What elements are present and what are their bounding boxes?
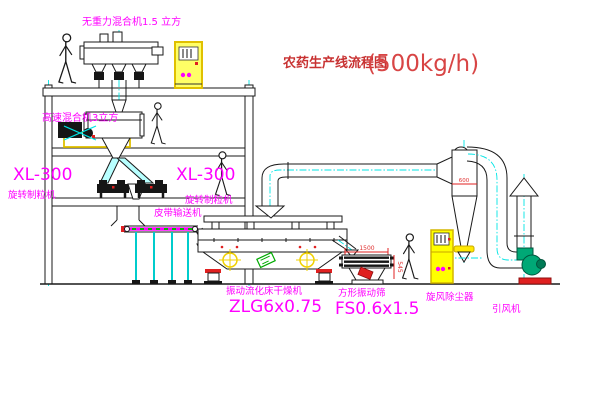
control-cabinet-top xyxy=(175,42,202,88)
rotary-granulator-left xyxy=(97,180,129,198)
indicator-lamp-icon xyxy=(448,238,451,241)
collector-bin-icon xyxy=(454,246,474,252)
label-gravity-mixer: 无重力混合机1.5 立方 xyxy=(82,15,181,28)
control-cabinet-right xyxy=(431,230,453,283)
indicator-lamp-icon xyxy=(195,62,198,65)
fan-motor-icon xyxy=(537,260,546,269)
worker-figure xyxy=(403,234,418,279)
button-icon xyxy=(441,267,445,271)
fan-base xyxy=(519,278,551,284)
motor-icon xyxy=(58,122,82,138)
label-granulator-mid: 旋转制粒机 xyxy=(185,194,233,206)
mid-floor-slab xyxy=(52,148,245,156)
induced-draft-fan xyxy=(517,248,551,284)
title-capacity: (500kg/h) xyxy=(367,51,479,77)
label-cyclone: 旋风除尘器 xyxy=(426,291,474,303)
top-floor-slab xyxy=(43,88,255,96)
square-vibrating-sieve: 1500 545 xyxy=(332,236,403,284)
cyclone-dimension: 600 xyxy=(459,178,470,184)
worker-figure xyxy=(59,34,76,83)
drawing-title: 农药生产线流程图 (500kg/h) xyxy=(282,51,479,77)
pesticide-line-drawing: 600 xyxy=(0,0,600,403)
y-split-chute xyxy=(100,158,153,183)
sieve-height-dimension: 545 xyxy=(396,261,403,273)
button-icon xyxy=(181,73,185,77)
label-sieve-model: FS0.6x1.5 xyxy=(335,299,419,319)
worker-figure xyxy=(151,103,165,144)
label-fan: 引风机 xyxy=(492,303,521,315)
label-high-speed-mixer: 高速混合机3立方 xyxy=(42,111,118,124)
sieve-width-dimension: 1500 xyxy=(359,245,374,252)
label-granulator-left: 旋转制粒机 xyxy=(8,189,56,201)
spring-mounts xyxy=(212,222,334,229)
conveyor-legs xyxy=(132,232,192,284)
label-belt-conveyor: 皮带输送机 xyxy=(154,207,202,219)
dryer-foot-right xyxy=(315,269,333,284)
label-xl300-mid: XL-300 xyxy=(176,165,235,185)
exhaust-duct xyxy=(256,162,437,218)
discharge-chute xyxy=(111,206,145,226)
label-dryer-name: 振动流化床干燥机 xyxy=(226,285,303,297)
fluid-bed-dryer xyxy=(198,216,347,284)
dryer-foot-left xyxy=(204,269,222,284)
button-icon xyxy=(187,73,191,77)
flow-diagram-canvas: 600 xyxy=(0,0,600,403)
label-xl300-left: XL-300 xyxy=(13,165,72,185)
button-icon xyxy=(436,267,440,271)
label-sieve-name: 方形振动筛 xyxy=(338,287,386,299)
label-dryer-model: ZLG6x0.75 xyxy=(229,297,322,317)
